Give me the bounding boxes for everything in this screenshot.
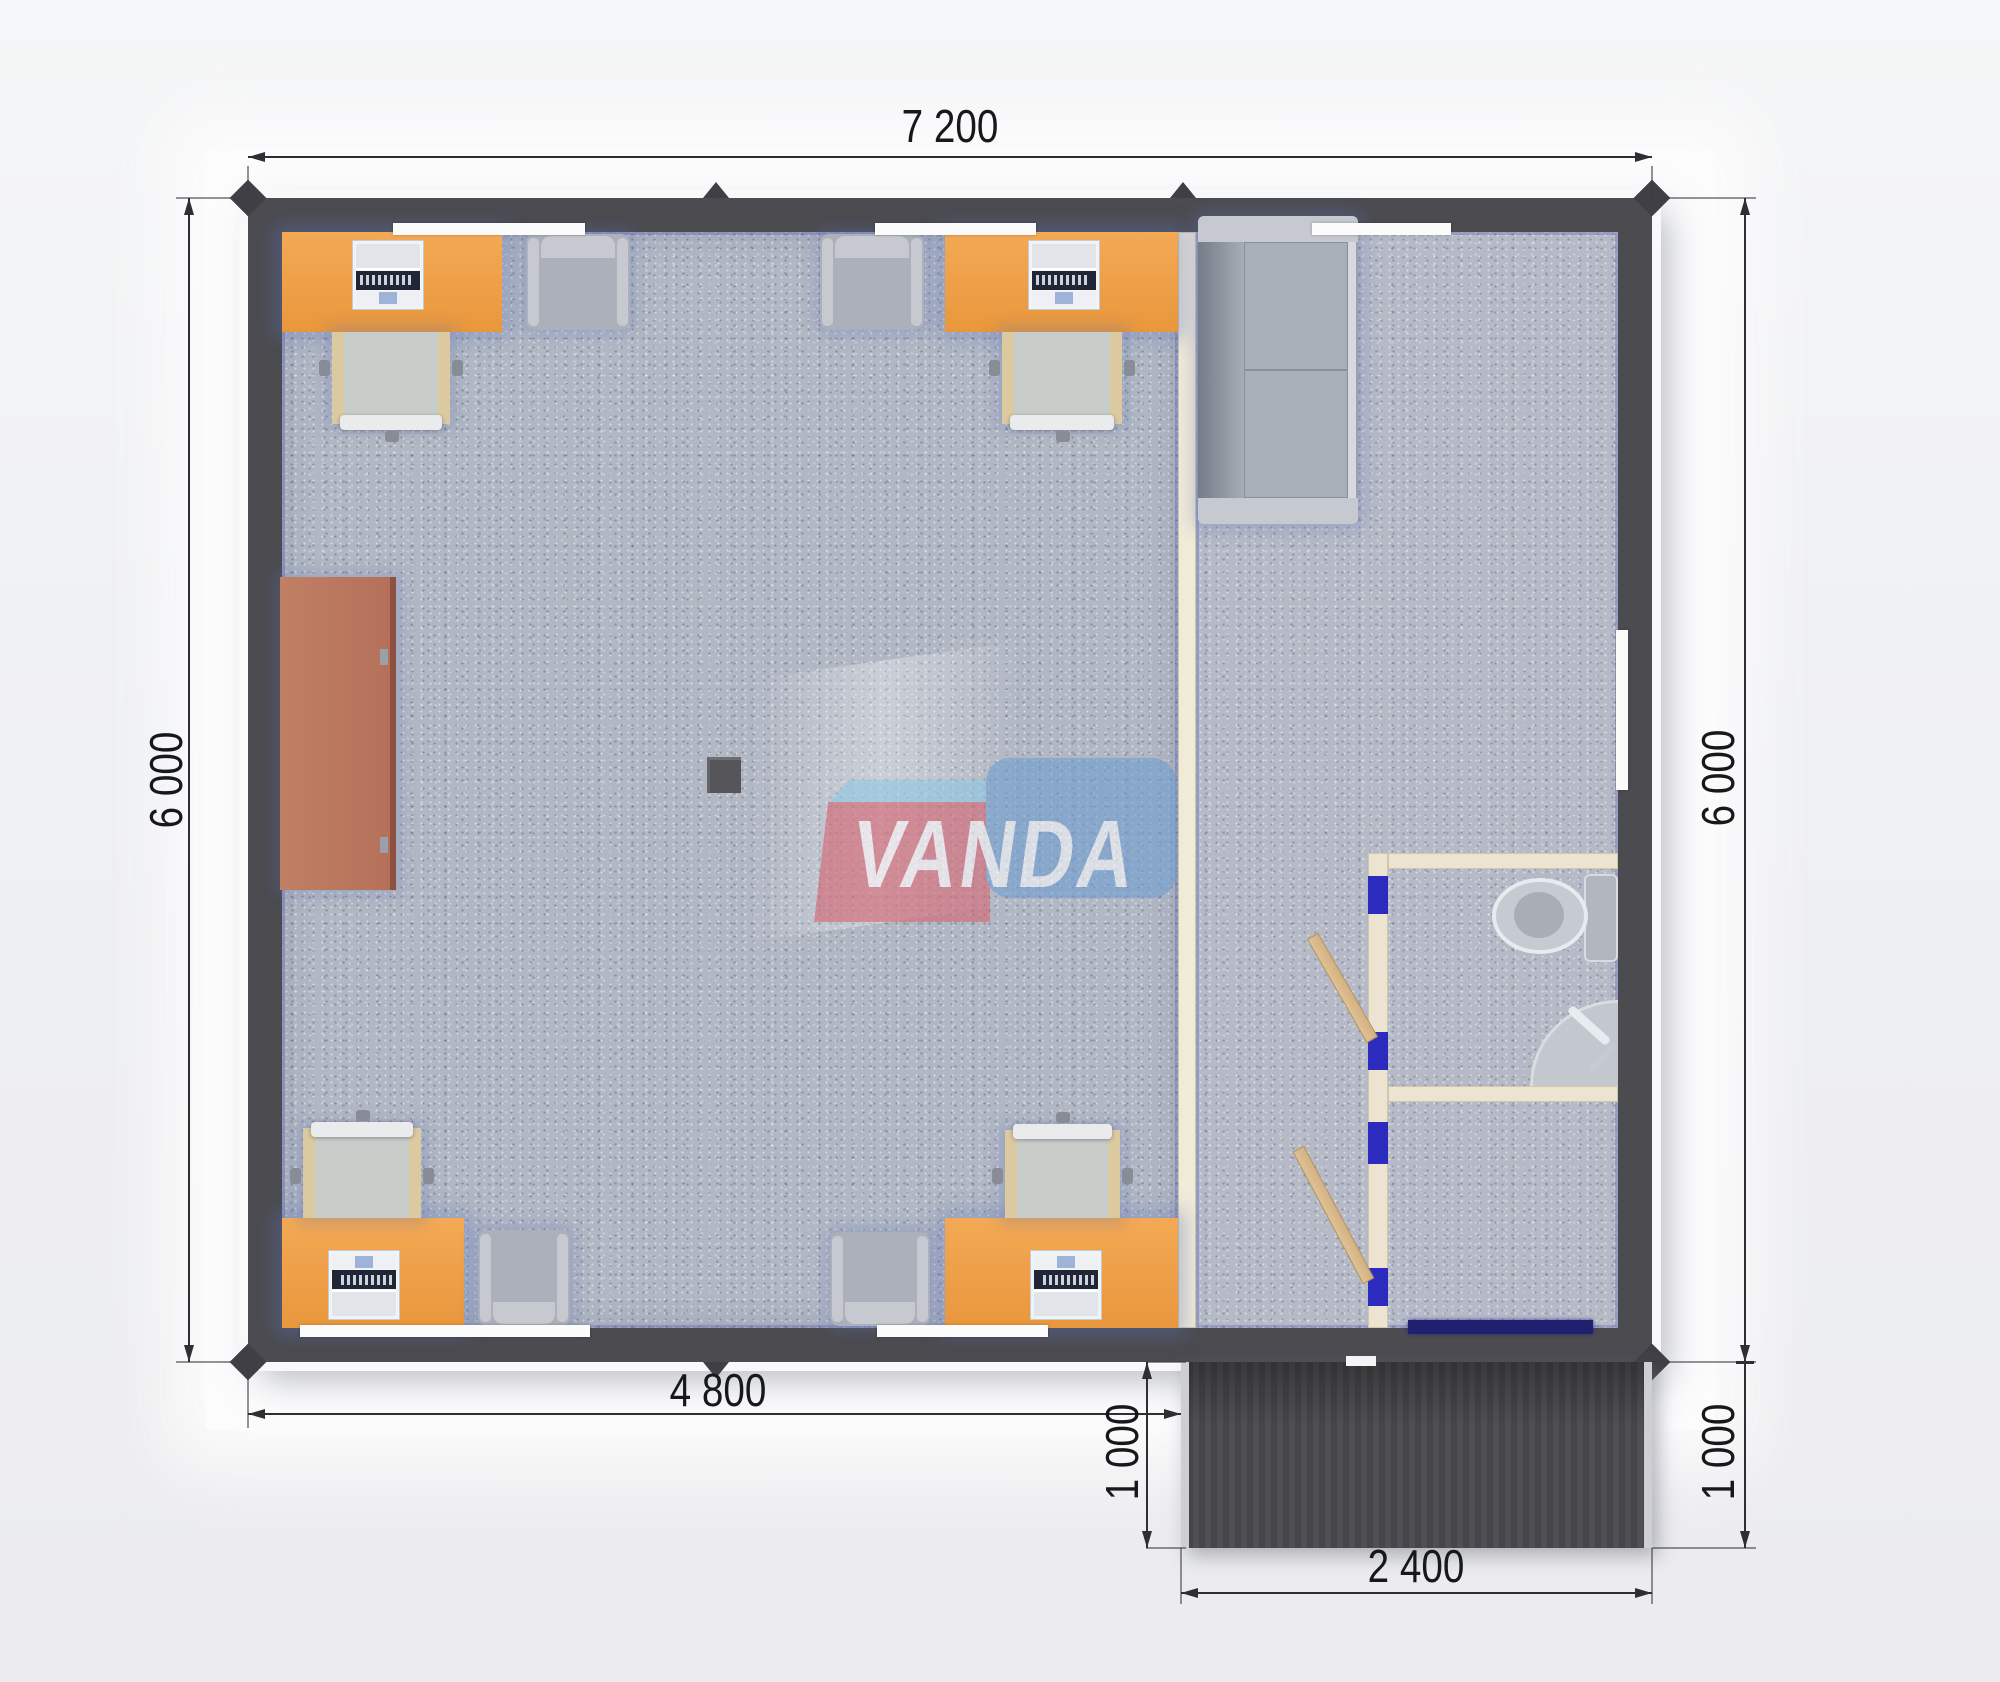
- laptop-keyboard: [332, 1270, 396, 1289]
- bathroom-top-wall: [1388, 853, 1618, 869]
- module-junction-marker: [703, 182, 729, 198]
- dimension-label-left: 6 000: [142, 696, 190, 864]
- laptop-palmrest: [1034, 1254, 1098, 1269]
- sofa-backrest: [1198, 242, 1244, 498]
- chair-frame: [1005, 1130, 1120, 1218]
- window: [877, 1325, 1048, 1337]
- chair-backrest: [340, 415, 442, 430]
- armchair-back: [835, 236, 909, 258]
- dimension-arrow: [1740, 1345, 1750, 1362]
- dimension-tick: [1736, 1361, 1754, 1364]
- chair-wheel: [356, 1110, 370, 1121]
- dimension-arrow: [1635, 152, 1652, 162]
- armrest: [480, 1234, 491, 1322]
- laptop-bottom-left: [328, 1250, 400, 1320]
- sideboard: [280, 577, 396, 890]
- desk-chair-bottom-right: [1005, 1130, 1120, 1218]
- armrest: [617, 238, 628, 326]
- sofa: [1198, 216, 1358, 524]
- window: [1312, 223, 1451, 235]
- sofa-cushion: [1244, 242, 1348, 370]
- laptop-top-right: [1028, 240, 1100, 310]
- dimension-label-porch-width: 2 400: [1332, 1542, 1500, 1590]
- dimension-label-top: 7 200: [866, 102, 1034, 150]
- armchair-back: [493, 1302, 555, 1324]
- window: [875, 223, 1036, 235]
- floor-plan-canvas: VANDA 7 200 6 000 6 000 1 000 4 800 1 00…: [0, 0, 2000, 1682]
- porch-edge-post: [1644, 1362, 1652, 1548]
- chair-wheel: [290, 1168, 301, 1184]
- dimension-arrow: [1635, 1588, 1652, 1598]
- window: [393, 223, 585, 235]
- sink-faucet: [1567, 1005, 1612, 1046]
- bathroom-bottom-wall: [1388, 1086, 1618, 1102]
- entrance-door: [1408, 1320, 1593, 1334]
- dimension-arrow: [1740, 198, 1750, 215]
- window: [1616, 630, 1628, 790]
- chair-wheel: [989, 360, 1000, 376]
- watermark-logo: VANDA: [805, 745, 1185, 930]
- chair-wheel: [992, 1168, 1003, 1184]
- sofa-front-edge: [1348, 242, 1356, 498]
- chair-frame: [1002, 332, 1122, 424]
- laptop-screen: [1034, 1290, 1098, 1316]
- porch-edge-post: [1181, 1362, 1189, 1548]
- dimension-label-porch-left: 1 000: [1098, 1368, 1146, 1536]
- laptop-top-left: [352, 240, 424, 310]
- laptop-palmrest: [356, 291, 420, 306]
- laptop-screen: [1032, 244, 1096, 270]
- laptop-trackpad: [355, 1256, 373, 1268]
- desk-chair-bottom-left: [303, 1128, 421, 1218]
- laptop-bottom-right: [1030, 1250, 1102, 1320]
- armchair-top-right: [820, 234, 924, 330]
- dimension-label-bottom: 4 800: [634, 1366, 802, 1414]
- chair-wheel: [1124, 360, 1135, 376]
- armchair-back: [845, 1302, 915, 1324]
- armrest: [557, 1234, 568, 1322]
- chair-backrest: [311, 1122, 413, 1137]
- sideboard-handle: [380, 649, 388, 665]
- window: [300, 1325, 590, 1337]
- chair-wheel: [319, 360, 330, 376]
- dimension-arrow: [1164, 1409, 1181, 1419]
- sink-faucet-handle: [1588, 1044, 1616, 1074]
- logo-brand-text: VANDA: [835, 800, 1154, 910]
- extension-line: [247, 166, 249, 198]
- toilet-bowl: [1492, 878, 1588, 954]
- toilet-bowl-inner: [1514, 892, 1564, 938]
- chair-wheel: [1122, 1168, 1133, 1184]
- laptop-trackpad: [1055, 292, 1073, 304]
- chair-backrest: [1013, 1124, 1112, 1139]
- dimension-line-top: [248, 156, 1652, 158]
- module-junction-marker: [1170, 182, 1196, 198]
- dimension-arrow: [184, 1345, 194, 1362]
- laptop-trackpad: [379, 292, 397, 304]
- armrest: [822, 238, 833, 326]
- armrest: [832, 1236, 843, 1322]
- dimension-arrow: [248, 1409, 265, 1419]
- door-threshold: [1346, 1356, 1376, 1366]
- laptop-keyboard: [1034, 1270, 1098, 1289]
- laptop-trackpad: [1057, 1256, 1075, 1268]
- sofa-cushion: [1244, 370, 1348, 498]
- porch-deck: [1181, 1362, 1652, 1548]
- toilet-tank: [1584, 874, 1618, 962]
- chair-wheel: [452, 360, 463, 376]
- laptop-palmrest: [1032, 291, 1096, 306]
- laptop-screen: [332, 1290, 396, 1316]
- laptop-keyboard: [356, 271, 420, 290]
- armchair-top-left: [526, 234, 630, 330]
- bathroom-left-wall: [1368, 853, 1388, 1328]
- chair-wheel: [423, 1168, 434, 1184]
- door-frame-post: [1368, 1122, 1388, 1164]
- support-column: [707, 757, 741, 793]
- chair-wheel: [385, 431, 399, 442]
- chair-frame: [303, 1128, 421, 1218]
- dimension-line-porch: [1181, 1592, 1652, 1594]
- armrest: [911, 238, 922, 326]
- dimension-arrow: [248, 152, 265, 162]
- sofa-armrest: [1198, 498, 1358, 524]
- extension-line: [1146, 1361, 1186, 1363]
- laptop-keyboard: [1032, 271, 1096, 290]
- sideboard-handle: [380, 837, 388, 853]
- laptop-screen: [356, 244, 420, 270]
- armrest: [917, 1236, 928, 1322]
- door-frame-post: [1368, 876, 1388, 914]
- armrest: [528, 238, 539, 326]
- dimension-label-porch-right: 1 000: [1694, 1368, 1742, 1536]
- dimension-label-right: 6 000: [1694, 694, 1742, 862]
- chair-backrest: [1010, 415, 1114, 430]
- chair-wheel: [1056, 1112, 1070, 1123]
- extension-line: [1651, 166, 1653, 198]
- chair-frame: [332, 332, 450, 424]
- desk-chair-top-left: [332, 332, 450, 424]
- dimension-arrow: [1181, 1588, 1198, 1598]
- desk-chair-top-right: [1002, 332, 1122, 424]
- chair-wheel: [1056, 431, 1070, 442]
- dimension-arrow: [184, 198, 194, 215]
- armchair-back: [541, 236, 615, 258]
- armchair-bottom-right: [830, 1232, 930, 1326]
- armchair-bottom-left: [478, 1230, 570, 1326]
- laptop-palmrest: [332, 1254, 396, 1269]
